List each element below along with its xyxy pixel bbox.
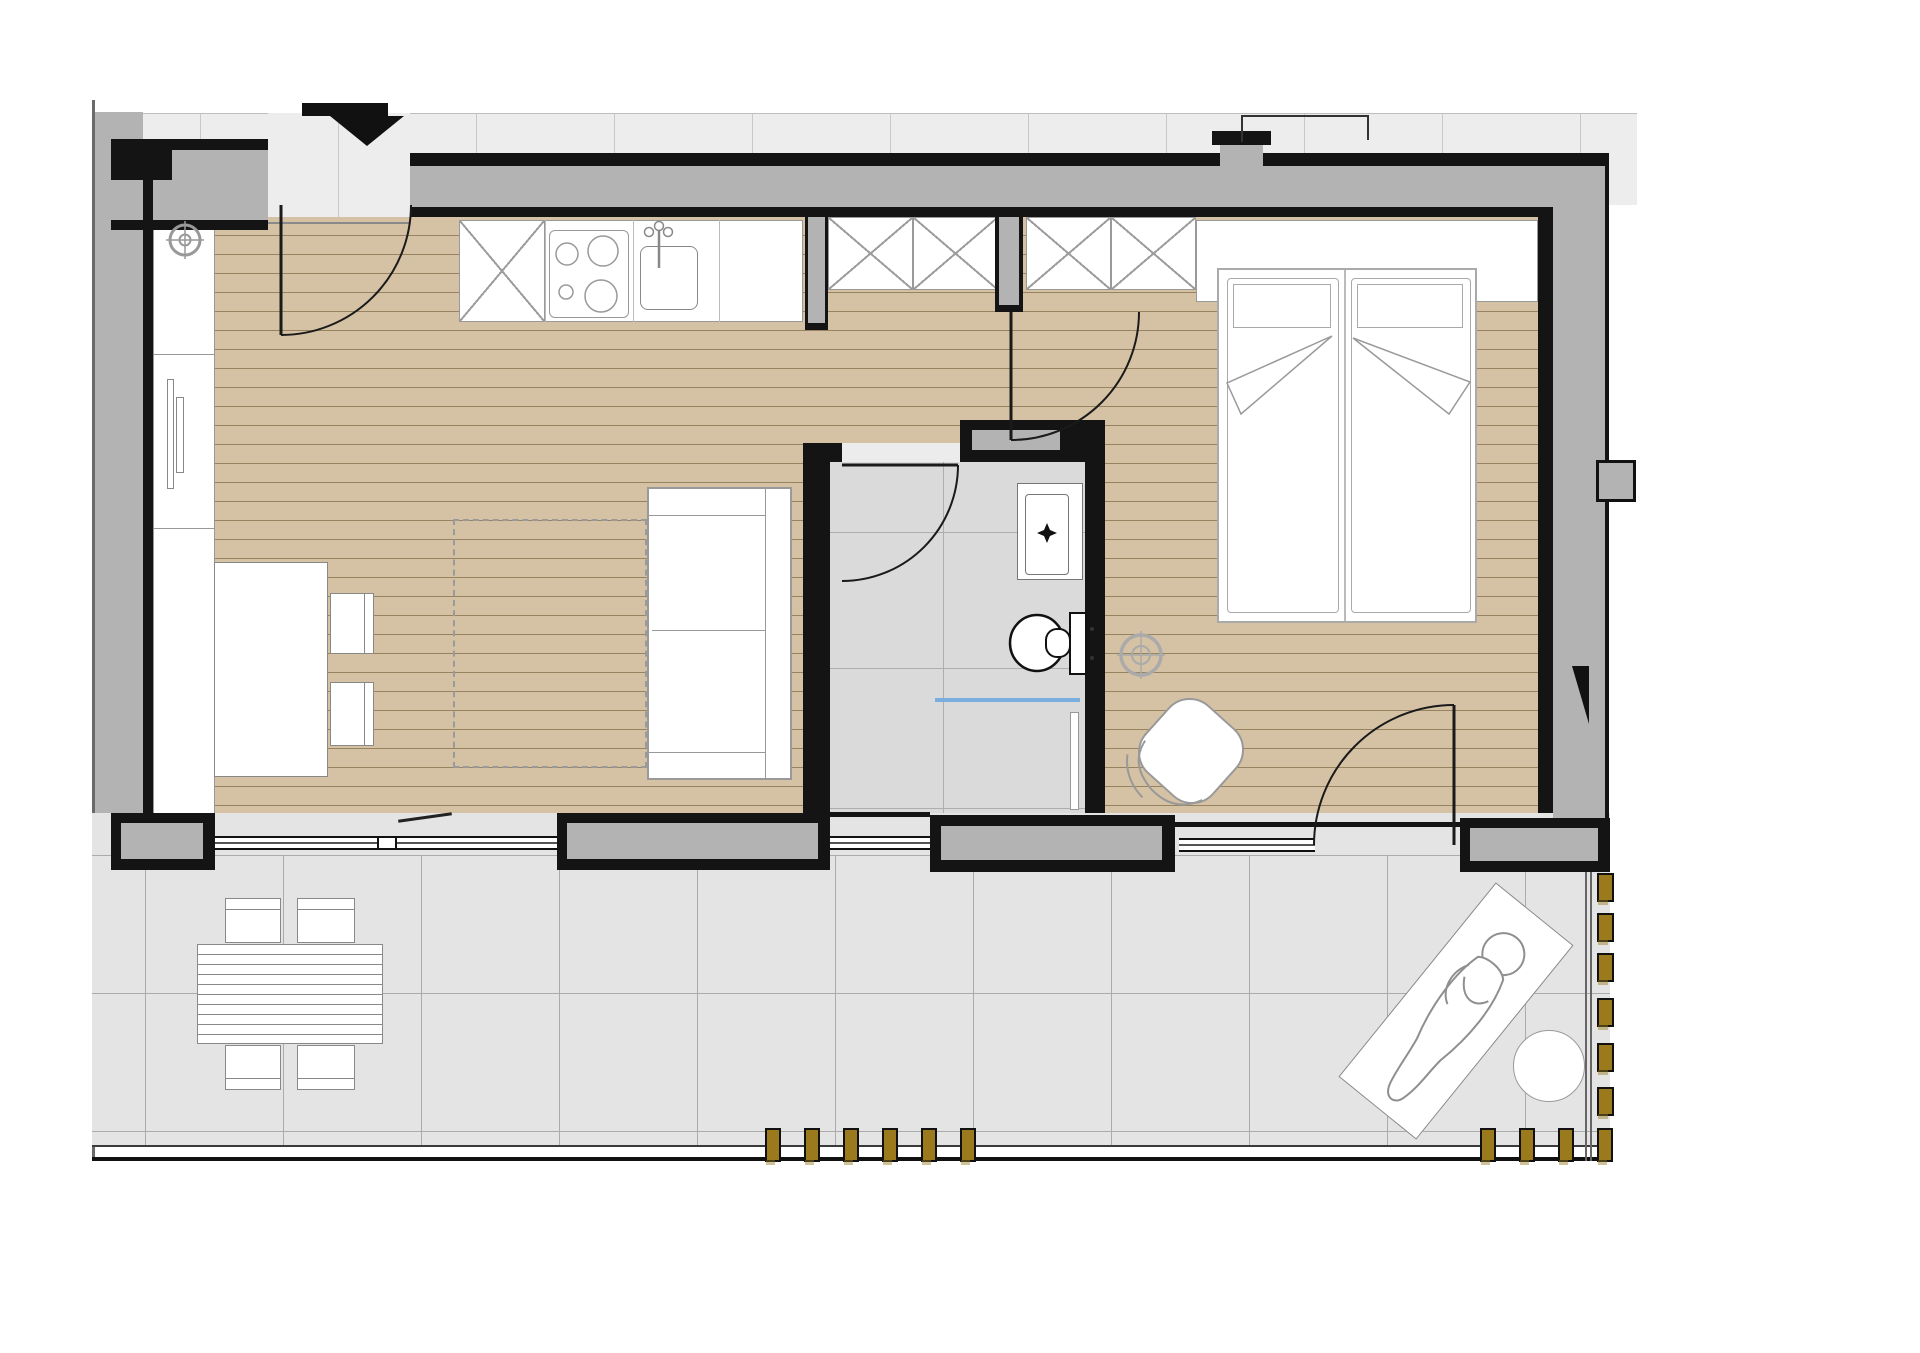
fence-post xyxy=(1480,1128,1496,1162)
wall-shaft-cap xyxy=(1212,131,1271,145)
wall-bottom-left-core xyxy=(121,823,203,859)
fence-post xyxy=(1597,1087,1614,1116)
wall-right-core xyxy=(1553,166,1605,870)
fence-post xyxy=(1519,1128,1535,1162)
fence-post-shadow xyxy=(1598,1070,1608,1075)
fence-post-shadow xyxy=(1559,1160,1568,1165)
radiator xyxy=(167,379,174,489)
bed-center-divider xyxy=(1344,270,1346,621)
terrace-grid-line-v xyxy=(1249,855,1250,1145)
wall-bottom-right-core xyxy=(1470,828,1598,861)
shower-screen-line xyxy=(935,698,1080,702)
fence-post xyxy=(960,1128,976,1162)
sliding-door-split xyxy=(377,838,397,848)
wall-top-main-inner-face xyxy=(410,207,1538,217)
fence-post-shadow xyxy=(1598,1160,1607,1165)
exterior-tile-line xyxy=(890,114,891,155)
fence-post-shadow xyxy=(844,1160,853,1165)
bedroom-wardrobe xyxy=(1026,217,1111,290)
bathroom-tile-line-h xyxy=(830,668,1085,669)
dining-chair xyxy=(330,593,374,654)
wall-bathroom-left xyxy=(803,443,830,813)
terrace-grid-line-v xyxy=(421,855,422,1145)
wall-unit-divider xyxy=(154,354,214,355)
entrance-threshold-line xyxy=(268,222,410,224)
kitchen-counter-divider xyxy=(633,220,634,322)
outdoor-chair xyxy=(225,1045,281,1090)
fence-post xyxy=(1597,913,1614,942)
outdoor-chair-backrest xyxy=(298,1078,354,1079)
fence-post-shadow xyxy=(1598,1114,1608,1119)
sofa-seat-divider xyxy=(652,630,765,631)
pillow-left xyxy=(1233,284,1331,328)
dining-chair-backrest xyxy=(364,594,365,653)
dining-chair-backrest xyxy=(364,683,365,745)
wall-unit-divider xyxy=(154,528,214,529)
fence-post-shadow xyxy=(1598,980,1608,985)
exterior-tile-line xyxy=(476,114,477,155)
exterior-tile-line xyxy=(752,114,753,155)
entrance-arrow-bar-icon xyxy=(302,103,388,116)
exterior-tile-line xyxy=(1028,114,1029,155)
kitchen-counter-divider xyxy=(545,220,546,322)
washbasin-bowl xyxy=(1025,494,1069,575)
exterior-tile-line xyxy=(1304,114,1305,155)
bathroom-window-sill-line xyxy=(830,812,930,817)
sofa xyxy=(647,487,792,780)
fence-post xyxy=(1597,1043,1614,1072)
exterior-tile-line xyxy=(1580,114,1581,155)
fence-post xyxy=(1597,1128,1613,1162)
wall-unit xyxy=(153,228,215,826)
wall-pillar-hall-core xyxy=(999,217,1019,305)
outdoor-table xyxy=(197,944,383,1044)
kitchen-sink xyxy=(640,246,698,310)
terrace-right-edge-line xyxy=(1585,870,1587,1161)
bedroom-window xyxy=(1179,838,1315,852)
exterior-tile-line xyxy=(1166,114,1167,155)
exterior-tile-line xyxy=(614,114,615,155)
shower-glass-panel xyxy=(1070,712,1079,810)
fence-post-shadow xyxy=(1520,1160,1529,1165)
floor-plan xyxy=(0,0,1920,1353)
wall-bathroom-top-right-core xyxy=(972,430,1060,450)
rug-outline xyxy=(453,519,647,768)
terrace-grid-line-v xyxy=(145,855,146,1145)
wall-top-main-core xyxy=(410,166,1600,207)
wall-right-protrusion xyxy=(1596,460,1636,502)
fence-post-shadow xyxy=(1598,940,1608,945)
terrace-grid-line-v xyxy=(697,855,698,1145)
terrace-grid-line-v xyxy=(835,855,836,1145)
mattress-right xyxy=(1351,278,1471,613)
bathroom-doorway xyxy=(842,443,960,462)
entrance-arrow-icon xyxy=(330,116,404,146)
terrace-right-edge-line2 xyxy=(1590,870,1592,1161)
fence-post-shadow xyxy=(922,1160,931,1165)
outdoor-chair xyxy=(297,898,355,943)
bathroom-window xyxy=(830,836,930,850)
fence-post xyxy=(1597,873,1614,902)
wall-pillar-kitchen-core xyxy=(808,217,825,323)
threshold-mid-line xyxy=(830,842,930,844)
radiator-panel xyxy=(176,397,184,473)
bedroom-wardrobe xyxy=(1111,217,1196,290)
fence-post xyxy=(921,1128,937,1162)
terrace-grid-line-h xyxy=(92,855,1610,856)
fence-post-shadow xyxy=(1598,900,1608,905)
sofa-armrest-line xyxy=(649,515,765,516)
mattress-left xyxy=(1227,278,1339,613)
outdoor-chair xyxy=(297,1045,355,1090)
wall-right-inner-face xyxy=(1538,217,1553,813)
wall-bathroom-top-left xyxy=(803,443,842,462)
tall-cabinet xyxy=(913,217,998,290)
fence-post-shadow xyxy=(961,1160,970,1165)
wall-top-left-inner xyxy=(111,220,268,230)
tall-cabinet xyxy=(828,217,913,290)
outdoor-chair-backrest xyxy=(298,909,354,910)
fence-post-shadow xyxy=(805,1160,814,1165)
fence-post-shadow xyxy=(766,1160,775,1165)
wall-left xyxy=(143,180,153,813)
wall-bathroom-right xyxy=(1085,420,1105,813)
dining-chair xyxy=(330,682,374,746)
fence-post-shadow xyxy=(1481,1160,1490,1165)
terrace-grid-line-v xyxy=(973,855,974,1145)
wall-corner-top-left xyxy=(111,139,172,180)
fence-post xyxy=(804,1128,820,1162)
outdoor-chair-backrest xyxy=(226,1078,280,1079)
sofa-armrest-line xyxy=(649,752,765,753)
fence-post xyxy=(843,1128,859,1162)
outdoor-chair xyxy=(225,898,281,943)
kitchen-x-cabinet xyxy=(459,220,545,322)
side-table xyxy=(1513,1030,1585,1102)
fence-post xyxy=(765,1128,781,1162)
exterior-right-tile-patch xyxy=(1609,113,1637,205)
fence-post xyxy=(1558,1128,1574,1162)
terrace-grid-line-v xyxy=(1111,855,1112,1145)
fence-post xyxy=(882,1128,898,1162)
fence-post-shadow xyxy=(883,1160,892,1165)
outdoor-chair-backrest xyxy=(226,909,280,910)
wall-right-outer-line xyxy=(1605,153,1609,870)
wall-bottom-mid-core xyxy=(567,823,818,859)
dining-table xyxy=(214,562,328,777)
wall-shaft-tab xyxy=(1220,145,1263,168)
exterior-tile-line xyxy=(1442,114,1443,155)
kitchen-counter-divider xyxy=(719,220,720,322)
bedroom-window-sill-line xyxy=(1175,822,1460,827)
sliding-door-threshold xyxy=(215,836,557,850)
fence-post xyxy=(1597,998,1614,1027)
fence-post-shadow xyxy=(1598,1025,1608,1030)
sofa-backrest-line xyxy=(765,489,766,778)
bathroom-tile-line-h xyxy=(830,808,1085,809)
bathroom-tile-line-v xyxy=(943,462,944,813)
stove xyxy=(549,230,629,318)
fence-post xyxy=(1597,953,1614,982)
wall-bottom-bathroom-core xyxy=(941,826,1162,860)
pillow-right xyxy=(1357,284,1463,328)
terrace-grid-line-v xyxy=(559,855,560,1145)
threshold-mid-line xyxy=(1179,844,1315,846)
